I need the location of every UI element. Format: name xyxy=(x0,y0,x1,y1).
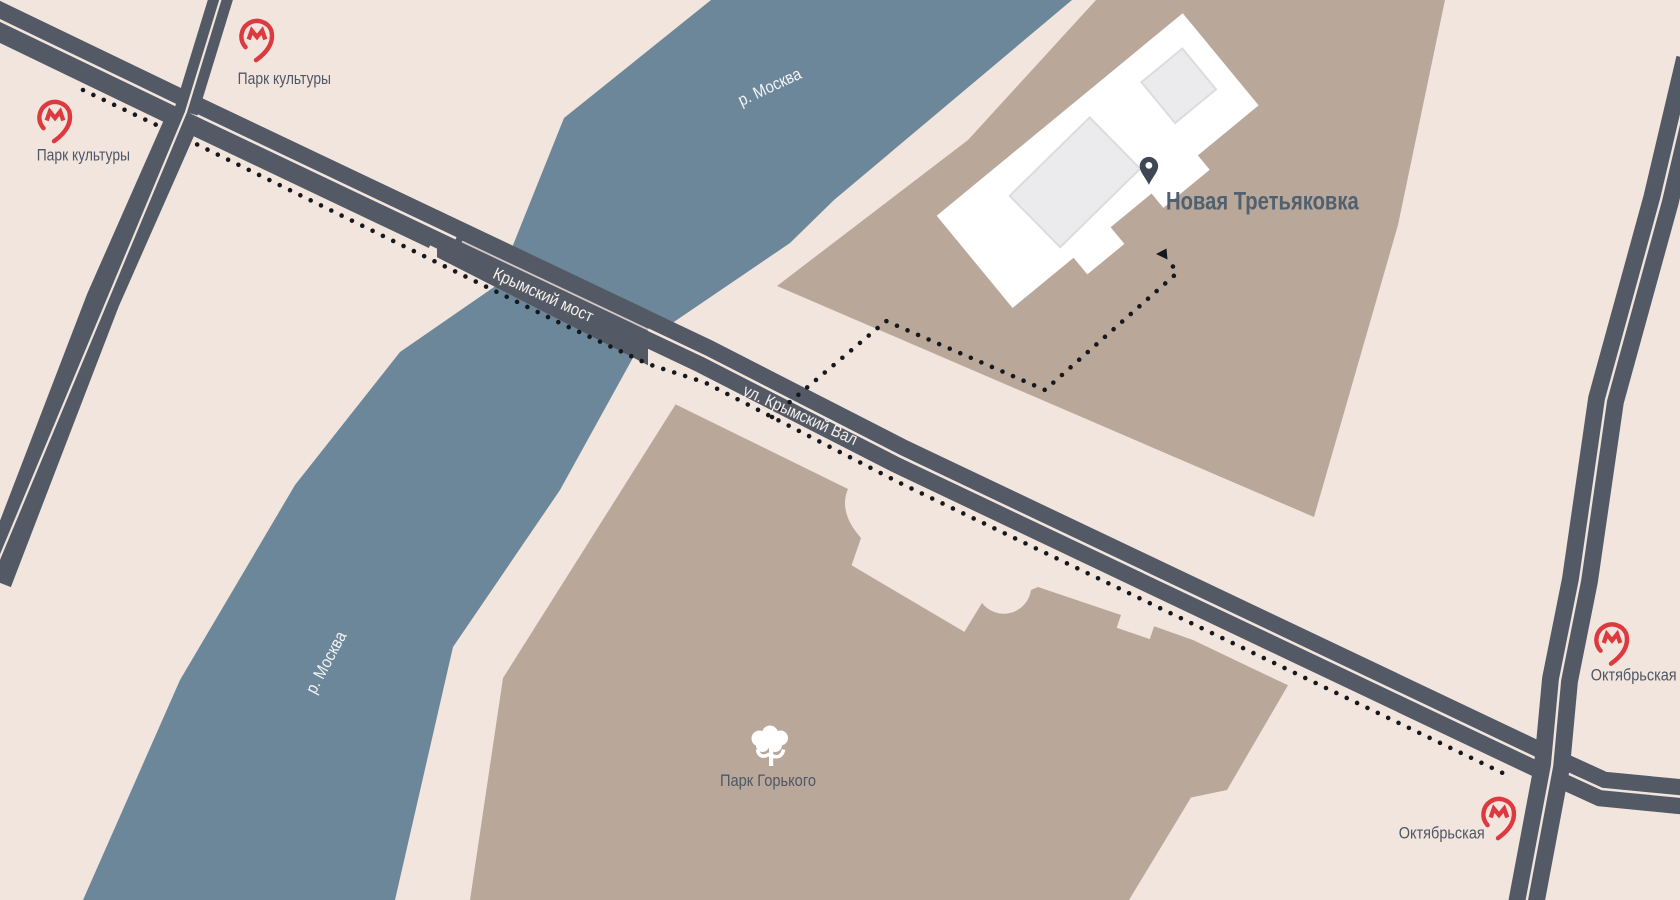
svg-text:Новая Третьяковка: Новая Третьяковка xyxy=(1166,186,1359,215)
svg-text:Парк культуры: Парк культуры xyxy=(37,146,130,165)
svg-text:Парк культуры: Парк культуры xyxy=(238,70,331,89)
svg-text:Парк Горького: Парк Горького xyxy=(720,772,816,790)
svg-text:Октябрьская: Октябрьская xyxy=(1399,825,1485,843)
svg-text:Октябрьская: Октябрьская xyxy=(1591,667,1677,685)
